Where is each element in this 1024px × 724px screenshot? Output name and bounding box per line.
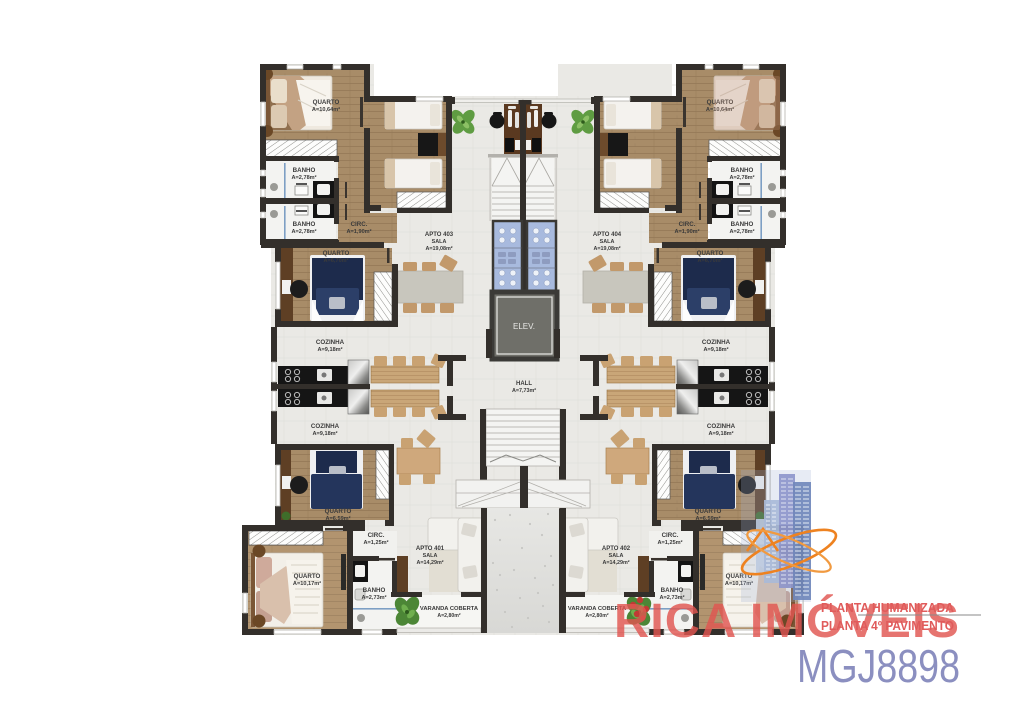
- svg-text:COZINHA: COZINHA: [311, 423, 340, 430]
- svg-text:A=6,70m²: A=6,70m²: [323, 257, 348, 264]
- svg-text:A=2,78m²: A=2,78m²: [729, 174, 754, 181]
- svg-text:A=2,80m²: A=2,80m²: [585, 613, 608, 619]
- svg-text:CIRC.: CIRC.: [351, 221, 368, 228]
- svg-text:A=9,18m²: A=9,18m²: [708, 430, 733, 437]
- svg-text:A=1,90m²: A=1,90m²: [674, 228, 699, 235]
- svg-text:A=2,73m²: A=2,73m²: [361, 594, 386, 601]
- svg-text:A=1,90m²: A=1,90m²: [346, 228, 371, 235]
- svg-text:BANHO: BANHO: [363, 587, 386, 594]
- svg-text:A=6,59m²: A=6,59m²: [325, 515, 350, 522]
- svg-text:APTO 401: APTO 401: [416, 546, 445, 552]
- svg-text:QUARTO: QUARTO: [695, 508, 722, 515]
- svg-text:A=1,25m²: A=1,25m²: [363, 539, 388, 546]
- svg-text:CIRC.: CIRC.: [662, 532, 679, 539]
- svg-text:BANHO: BANHO: [731, 221, 754, 228]
- svg-text:QUARTO: QUARTO: [294, 573, 321, 580]
- svg-text:COZINHA: COZINHA: [707, 423, 736, 430]
- svg-text:SALA: SALA: [609, 553, 624, 559]
- svg-text:HALL: HALL: [516, 381, 532, 387]
- svg-text:QUARTO: QUARTO: [323, 250, 350, 257]
- svg-text:PLANTA 4º PAVIMENTO: PLANTA 4º PAVIMENTO: [821, 618, 954, 633]
- svg-text:A=2,80m²: A=2,80m²: [437, 613, 460, 619]
- svg-text:APTO 403: APTO 403: [425, 232, 454, 238]
- svg-text:BANHO: BANHO: [731, 167, 754, 174]
- svg-text:A=7,73m²: A=7,73m²: [512, 388, 536, 394]
- svg-text:QUARTO: QUARTO: [313, 99, 340, 106]
- svg-text:ELEV.: ELEV.: [513, 322, 535, 331]
- svg-text:APTO 402: APTO 402: [602, 546, 631, 552]
- svg-text:A=2,78m²: A=2,78m²: [291, 228, 316, 235]
- svg-text:QUARTO: QUARTO: [325, 508, 352, 515]
- svg-text:A=1,25m²: A=1,25m²: [657, 539, 682, 546]
- svg-text:A=14,29m²: A=14,29m²: [416, 560, 443, 566]
- svg-text:CIRC.: CIRC.: [679, 221, 696, 228]
- svg-text:BANHO: BANHO: [293, 167, 316, 174]
- svg-text:A=19,08m²: A=19,08m²: [593, 246, 620, 252]
- svg-text:BANHO: BANHO: [293, 221, 316, 228]
- svg-text:A=2,78m²: A=2,78m²: [291, 174, 316, 181]
- svg-text:QUARTO: QUARTO: [697, 250, 724, 257]
- svg-text:SALA: SALA: [600, 239, 615, 245]
- svg-text:PLANTA HUMANIZADA: PLANTA HUMANIZADA: [821, 600, 955, 615]
- svg-text:A=9,18m²: A=9,18m²: [317, 346, 342, 353]
- svg-text:A=9,18m²: A=9,18m²: [703, 346, 728, 353]
- svg-text:COZINHA: COZINHA: [316, 339, 345, 346]
- svg-text:A=6,59m²: A=6,59m²: [695, 515, 720, 522]
- svg-text:A=10,64m²: A=10,64m²: [312, 106, 340, 113]
- svg-text:A=19,08m²: A=19,08m²: [425, 246, 452, 252]
- svg-text:A=14,29m²: A=14,29m²: [602, 560, 629, 566]
- svg-text:A=10,17m²: A=10,17m²: [293, 580, 321, 587]
- svg-text:COZINHA: COZINHA: [702, 339, 731, 346]
- svg-text:SALA: SALA: [432, 239, 447, 245]
- svg-text:MGJ8898: MGJ8898: [797, 640, 960, 692]
- svg-text:A=2,78m²: A=2,78m²: [729, 228, 754, 235]
- svg-text:APTO 404: APTO 404: [593, 232, 622, 238]
- svg-text:VARANDA COBERTA: VARANDA COBERTA: [420, 606, 479, 612]
- svg-text:A=9,18m²: A=9,18m²: [312, 430, 337, 437]
- svg-text:BANHO: BANHO: [661, 587, 684, 594]
- svg-text:SALA: SALA: [423, 553, 438, 559]
- svg-text:CIRC.: CIRC.: [368, 532, 385, 539]
- svg-text:A=6,70m²: A=6,70m²: [697, 257, 722, 264]
